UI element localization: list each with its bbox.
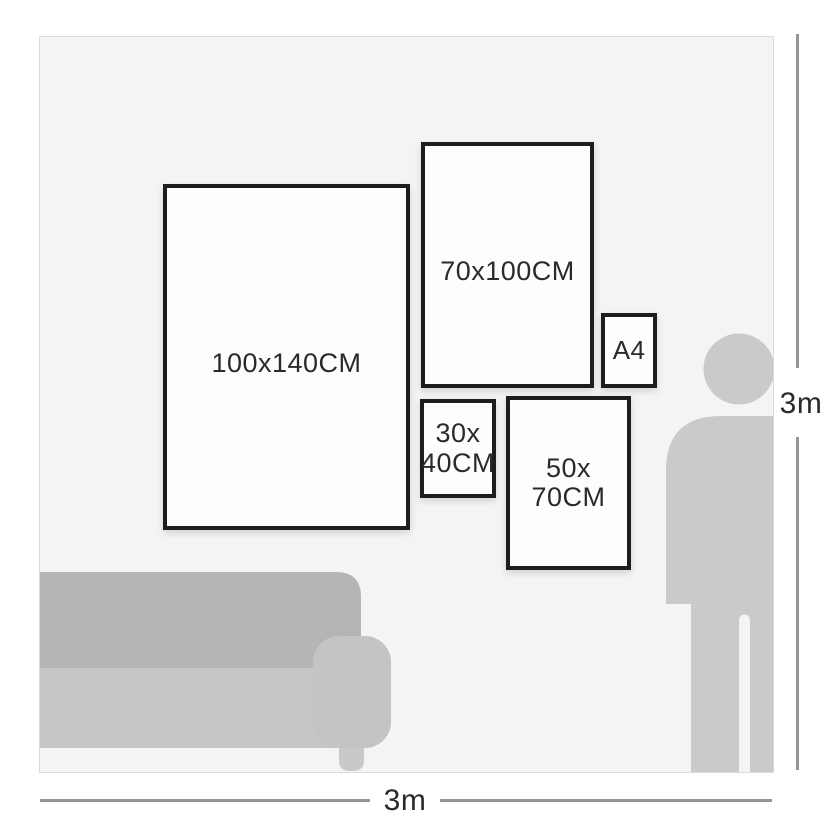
frame-30x40: 30x 40CM xyxy=(420,399,496,498)
frame-50x70: 50x 70CM xyxy=(506,396,631,570)
frame-100x140: 100x140CM xyxy=(163,184,410,530)
frame-30x40-label-line2: 40CM xyxy=(421,449,495,478)
height-dimension-line-lower xyxy=(796,437,799,770)
frame-a4-label: A4 xyxy=(613,336,645,364)
frame-70x100-label: 70x100CM xyxy=(440,257,575,286)
frame-50x70-label-line1: 50x xyxy=(546,454,591,483)
person-silhouette xyxy=(666,334,773,773)
poster-size-guide-diagram: 100x140CM 70x100CM A4 30x 40CM 50x 70CM … xyxy=(0,0,840,840)
height-dimension-label: 3m xyxy=(769,387,833,421)
frame-a4: A4 xyxy=(601,313,657,388)
width-dimension-line-right xyxy=(440,799,772,802)
width-dimension-line-left xyxy=(40,799,370,802)
frame-70x100: 70x100CM xyxy=(421,142,594,388)
height-dimension-line-upper xyxy=(796,34,799,368)
width-dimension-label: 3m xyxy=(368,784,442,818)
sofa-silhouette xyxy=(40,572,391,771)
frame-30x40-label-line1: 30x xyxy=(435,419,480,448)
wall: 100x140CM 70x100CM A4 30x 40CM 50x 70CM xyxy=(39,36,774,773)
frame-50x70-label-line2: 70CM xyxy=(531,483,605,512)
frame-100x140-label: 100x140CM xyxy=(211,349,361,378)
